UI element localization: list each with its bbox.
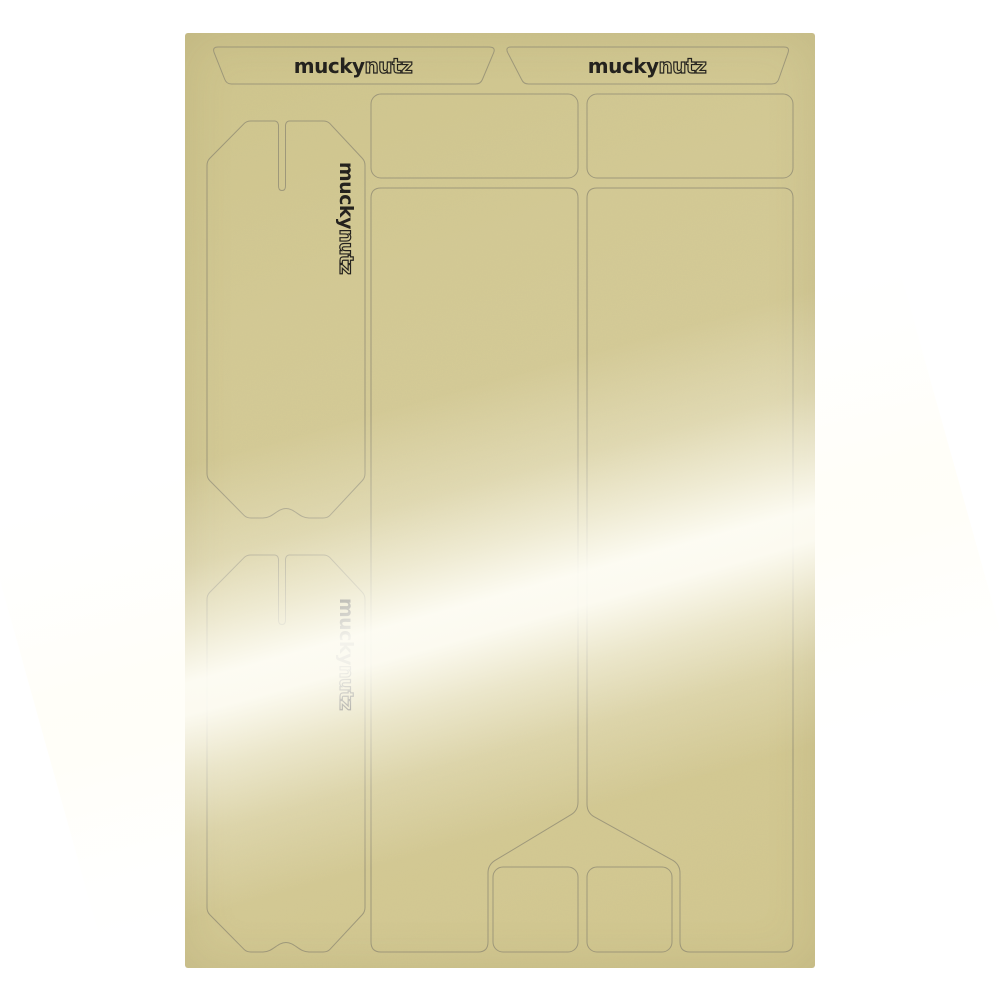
brand-logo-banner-right: muckynutz [547, 53, 747, 78]
brand-logo-vertical-top: muckynutz [334, 148, 358, 288]
brand-wordmark-secondary: nutz [337, 229, 356, 274]
brand-wordmark-secondary: nutz [659, 56, 707, 76]
brand-logo-vertical-bottom: muckynutz [334, 584, 358, 724]
cut-small-square-right [587, 867, 672, 952]
brand-wordmark-secondary: nutz [337, 665, 356, 710]
cut-tall-strip-right [587, 188, 793, 952]
brand-wordmark-secondary: nutz [365, 56, 413, 76]
cut-small-square-left [493, 867, 578, 952]
brand-wordmark-primary: mucky [337, 162, 356, 229]
protection-film-sheet: muckynutz muckynutz muckynutz muckynutz [185, 33, 815, 968]
brand-logo-banner-left: muckynutz [253, 53, 453, 78]
cut-tall-strip-left [371, 188, 578, 952]
product-photo: muckynutz muckynutz muckynutz muckynutz [0, 0, 1000, 1000]
brand-wordmark-primary: mucky [294, 56, 365, 76]
cut-patch-top-right [587, 94, 793, 178]
die-cut-outlines [185, 33, 815, 968]
brand-wordmark-primary: mucky [337, 598, 356, 665]
cut-patch-top-left [371, 94, 578, 178]
brand-wordmark-primary: mucky [588, 56, 659, 76]
